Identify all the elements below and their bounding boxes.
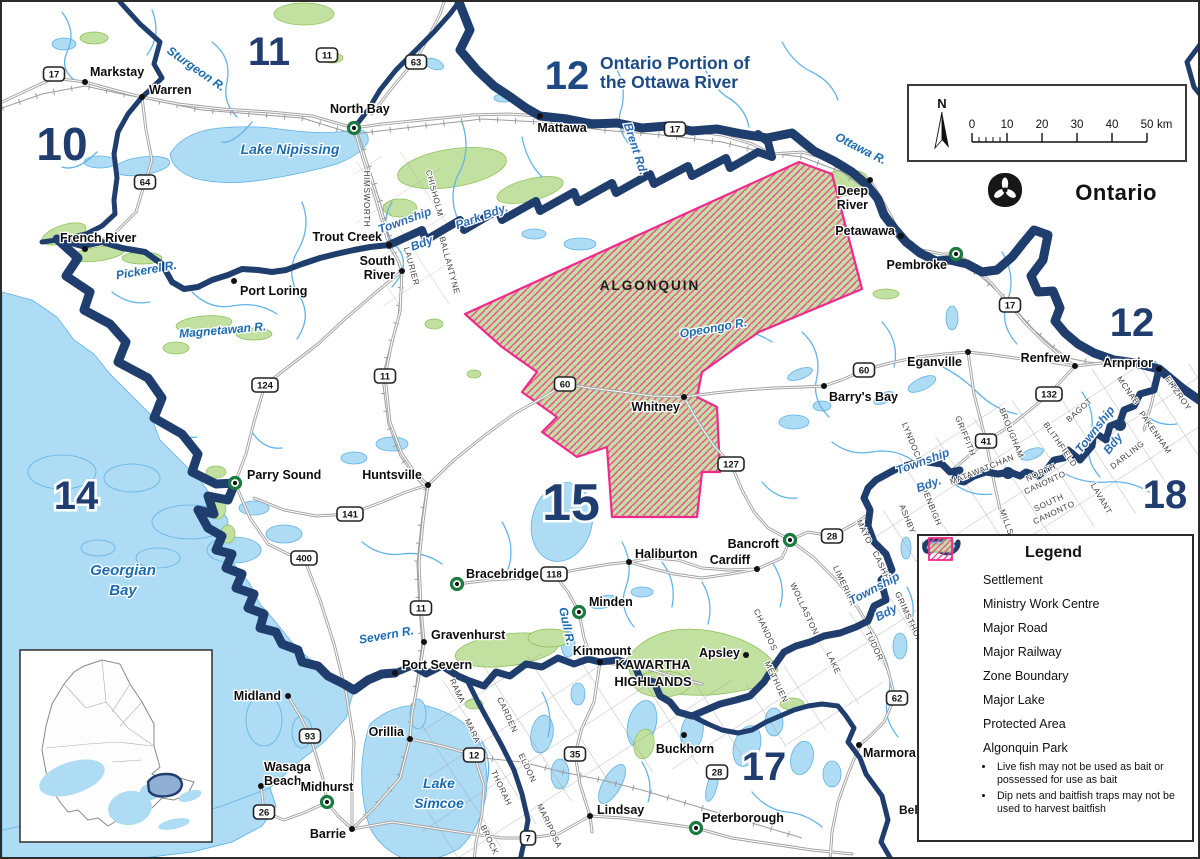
settlement-label: Barrie xyxy=(310,827,346,841)
settlement-dot xyxy=(821,383,827,389)
settlement-label: Cardiff xyxy=(710,553,751,567)
settlement-label: Renfrew xyxy=(1021,351,1071,365)
shield-number: 41 xyxy=(981,437,992,448)
map-page: HIMSWORTHCHISHOLMLAURIERBALLANTYNELYNDOC… xyxy=(0,0,1200,859)
settlement-label: Parry Sound xyxy=(247,468,321,482)
settlement-label: Whitney xyxy=(631,400,680,414)
legend-item-road: Major Road xyxy=(925,616,1182,640)
settlement-dot xyxy=(386,242,392,248)
road-shield-11: 11 xyxy=(317,48,338,62)
settlement-label: Midland xyxy=(234,689,281,703)
shield-number: 132 xyxy=(1041,390,1057,401)
settlement-dot xyxy=(421,639,427,645)
scale-bar: N 01020304050km xyxy=(907,84,1187,162)
road-shield-28: 28 xyxy=(822,529,843,543)
scale-tick-label: 30 xyxy=(1071,119,1084,131)
settlement-label: Midhurst xyxy=(301,780,355,794)
settlement-label: Minden xyxy=(589,595,633,609)
legend-item-label: Zone Boundary xyxy=(983,669,1068,683)
settlement-label: Trout Creek xyxy=(313,230,383,244)
road-shield-11: 11 xyxy=(375,369,396,383)
shield-number: 11 xyxy=(380,372,391,383)
title-line1: Ontario Portion of xyxy=(600,53,750,73)
zone-number-15: 15 xyxy=(542,474,600,532)
settlement-label: Port Loring xyxy=(240,284,307,298)
shield-number: 124 xyxy=(257,381,274,392)
map-title: 12 Ontario Portion of the Ottawa River xyxy=(545,53,750,98)
road-shield-118: 118 xyxy=(541,567,567,581)
zone-number-17: 17 xyxy=(742,745,787,789)
settlement-dot xyxy=(681,394,687,400)
settlement-label: Barry's Bay xyxy=(829,390,898,404)
shield-number: 118 xyxy=(546,570,561,581)
boundary-label: Park Bdy. xyxy=(453,200,509,232)
road-shield-400: 400 xyxy=(291,551,317,565)
shield-number: 28 xyxy=(827,532,838,543)
scale-tick-label: 0 xyxy=(969,119,975,131)
road-shield-17: 17 xyxy=(1000,298,1021,312)
water-label: Lake xyxy=(423,775,455,791)
trillium-icon xyxy=(987,172,1023,208)
road-shield-127: 127 xyxy=(718,457,744,471)
legend-item-rail: Major Railway xyxy=(925,640,1182,664)
legend-item-park: Algonquin Park xyxy=(925,736,1182,760)
ministry-work-centre-dot xyxy=(788,538,792,542)
legend-item-label: Major Lake xyxy=(983,693,1045,707)
scale-tick-label: 20 xyxy=(1036,119,1049,131)
shield-number: 60 xyxy=(560,380,571,391)
water-label: Georgian xyxy=(90,562,156,579)
settlement-dot xyxy=(1156,366,1162,372)
settlement-label: Bracebridge xyxy=(466,567,539,581)
road-shield-64: 64 xyxy=(135,175,156,189)
settlement-label: Marmora xyxy=(863,746,917,760)
road-shield-62: 62 xyxy=(887,691,908,705)
settlement-label: Peterborough xyxy=(702,811,784,825)
settlement-dot xyxy=(399,268,405,274)
road-shield-124: 124 xyxy=(252,378,278,392)
shield-number: 11 xyxy=(416,604,427,615)
settlement-label: Buckhorn xyxy=(656,742,714,756)
shield-number: 63 xyxy=(411,58,422,69)
settlement-label: River xyxy=(364,268,395,282)
water-label: Simcoe xyxy=(414,795,464,811)
settlement-barrie: Barrie xyxy=(310,826,355,841)
shield-number: 35 xyxy=(570,750,581,761)
settlement-markstay: Markstay xyxy=(82,65,144,85)
road-shield-93: 93 xyxy=(300,729,321,743)
park-note: Live fish may not be used as bait or pos… xyxy=(995,761,1182,787)
water-label: Lake Nipissing xyxy=(241,141,340,157)
legend-item-label: Protected Area xyxy=(983,717,1066,731)
settlement-label: Deep xyxy=(837,184,868,198)
legend-item-label: Ministry Work Centre xyxy=(983,597,1099,611)
shield-number: 11 xyxy=(322,51,333,62)
legend: Legend SettlementMinistry Work CentreMaj… xyxy=(917,534,1194,842)
shield-number: 7 xyxy=(525,834,530,845)
legend-item-label: Settlement xyxy=(983,573,1043,587)
settlement-huntsville: Huntsville xyxy=(362,468,431,488)
settlement-dot xyxy=(1072,363,1078,369)
settlement-label: Mattawa xyxy=(537,121,587,135)
township-label: CHANDOS xyxy=(752,608,779,653)
ministry-work-centre-dot xyxy=(694,826,698,830)
settlement-label: Warren xyxy=(149,83,192,97)
settlement-label: Orillia xyxy=(369,725,405,739)
settlement-barry-s-bay: Barry's Bay xyxy=(821,383,898,404)
road-shield-141: 141 xyxy=(337,507,363,521)
settlement-label: Lindsay xyxy=(597,803,644,817)
settlement-label: South xyxy=(360,254,395,268)
legend-item-label: Major Railway xyxy=(983,645,1062,659)
road-shield-41: 41 xyxy=(976,434,997,448)
settlement-dot xyxy=(231,278,237,284)
algonquin-park-area xyxy=(465,162,862,517)
legend-item-label: Major Road xyxy=(983,621,1048,635)
ministry-work-centre-dot xyxy=(455,582,459,586)
zone-number-14: 14 xyxy=(54,474,99,518)
shield-number: 17 xyxy=(49,70,60,81)
shield-number: 60 xyxy=(859,366,870,377)
shield-number: 127 xyxy=(723,460,739,471)
ministry-work-centre-dot xyxy=(577,610,581,614)
legend-item-mwc: Ministry Work Centre xyxy=(925,592,1182,616)
settlement-dot xyxy=(537,113,543,119)
road-shield-60: 60 xyxy=(854,363,875,377)
settlement-label: River xyxy=(837,198,868,212)
settlement-label: Markstay xyxy=(90,65,144,79)
settlement-label: Haliburton xyxy=(635,547,698,561)
settlement-dot xyxy=(743,652,749,658)
settlement-label: French River xyxy=(60,231,137,245)
settlement-dot xyxy=(407,736,413,742)
ontario-logo-text: Ontario xyxy=(1075,180,1157,206)
township-label: HIMSWORTH xyxy=(362,171,371,228)
settlement-label: Eganville xyxy=(907,355,962,369)
settlement-dot xyxy=(898,233,904,239)
settlement-petawawa: Petawawa xyxy=(835,224,904,239)
park-note: Dip nets and baitfish traps may not be u… xyxy=(995,790,1182,816)
settlement-dot xyxy=(139,94,145,100)
settlement-dot xyxy=(856,742,862,748)
scale-tick-label: 50 xyxy=(1141,119,1154,131)
road-shield-17: 17 xyxy=(665,122,686,136)
road-shield-132: 132 xyxy=(1036,387,1062,401)
settlement-dot xyxy=(587,813,593,819)
settlement-dot xyxy=(285,693,291,699)
settlement-bracebridge: Bracebridge xyxy=(452,567,539,590)
ministry-work-centre-dot xyxy=(233,481,237,485)
settlement-label: North Bay xyxy=(330,102,390,116)
settlement-label: Wasaga xyxy=(264,760,312,774)
zone-number-18: 18 xyxy=(1143,473,1188,517)
road-shield-35: 35 xyxy=(565,747,586,761)
settlement-port-loring: Port Loring xyxy=(231,278,307,298)
north-label: N xyxy=(937,96,946,111)
shield-number: 12 xyxy=(469,751,480,762)
shield-number: 62 xyxy=(892,694,903,705)
area-label: HIGHLANDS xyxy=(614,674,692,689)
water-label: Severn R. xyxy=(358,623,415,646)
road-shield-11: 11 xyxy=(411,601,432,615)
settlement-midhurst: Midhurst xyxy=(301,780,355,808)
legend-item-dot: Settlement xyxy=(925,568,1182,592)
scale-tick-label: 40 xyxy=(1106,119,1119,131)
settlement-label: Petawawa xyxy=(835,224,896,238)
legend-item-protected: Protected Area xyxy=(925,712,1182,736)
settlement-dot xyxy=(867,177,873,183)
legend-item-zone: Zone Boundary xyxy=(925,664,1182,688)
legend-title: Legend xyxy=(925,544,1182,562)
title-line2: the Ottawa River xyxy=(600,72,738,92)
settlement-dot xyxy=(349,826,355,832)
algonquin-park-notes: Live fish may not be used as bait or pos… xyxy=(983,761,1182,816)
shield-number: 28 xyxy=(712,768,723,779)
settlement-label: Huntsville xyxy=(362,468,422,482)
settlement-label: Arnprior xyxy=(1103,356,1153,370)
shield-number: 26 xyxy=(259,808,270,819)
township-label: WOLLASTON xyxy=(788,581,820,636)
shield-number: 17 xyxy=(670,125,681,136)
settlement-minden: Minden xyxy=(574,595,633,618)
settlement-dot xyxy=(681,732,687,738)
zone-number-12: 12 xyxy=(1110,301,1155,345)
ministry-work-centre-dot xyxy=(325,800,329,804)
settlement-dot xyxy=(597,659,603,665)
settlement-dot xyxy=(626,559,632,565)
settlement-dot xyxy=(965,349,971,355)
settlement-dot xyxy=(392,670,398,676)
shield-number: 141 xyxy=(342,510,359,521)
ministry-work-centre-dot xyxy=(954,252,958,256)
road-shield-12: 12 xyxy=(464,748,485,762)
settlement-label: Gravenhurst xyxy=(431,628,506,642)
algonquin-park-label: ALGONQUIN xyxy=(600,278,701,293)
settlement-label: Beach xyxy=(264,774,302,788)
settlement-dot xyxy=(82,79,88,85)
settlement-marmora: Marmora xyxy=(856,742,917,760)
settlement-label: Port Severn xyxy=(402,658,472,672)
road-shield-28: 28 xyxy=(707,765,728,779)
inset-map xyxy=(20,650,212,842)
scale-unit: km xyxy=(1157,119,1172,131)
settlement-parry-sound: Parry Sound xyxy=(230,468,322,489)
shield-number: 400 xyxy=(296,554,312,565)
area-label: KAWARTHA xyxy=(615,657,691,672)
ministry-work-centre-dot xyxy=(352,126,356,130)
title-zone-number: 12 xyxy=(545,54,590,98)
shield-number: 17 xyxy=(1005,301,1016,312)
ontario-logo: Ontario xyxy=(987,172,1157,214)
north-arrow-icon xyxy=(942,112,949,148)
shield-number: 93 xyxy=(305,732,316,743)
road-shield-7: 7 xyxy=(521,831,536,845)
road-shield-26: 26 xyxy=(254,805,275,819)
settlement-dot xyxy=(82,246,88,252)
scale-tick-label: 10 xyxy=(1001,119,1014,131)
shield-number: 64 xyxy=(140,178,151,189)
zone-number-11: 11 xyxy=(248,30,290,74)
water-label: Bay xyxy=(109,582,137,599)
legend-item-lake: Major Lake xyxy=(925,688,1182,712)
settlement-label: Pembroke xyxy=(887,258,947,272)
legend-item-label: Algonquin Park xyxy=(983,741,1068,755)
settlement-dot xyxy=(754,566,760,572)
settlement-label: Bancroft xyxy=(728,537,780,551)
road-shield-17: 17 xyxy=(44,67,65,81)
road-shield-60: 60 xyxy=(555,377,576,391)
settlement-dot xyxy=(425,482,431,488)
zone-number-10: 10 xyxy=(36,118,87,170)
settlement-label: Kinmount xyxy=(573,644,632,658)
settlement-label: Apsley xyxy=(699,646,740,660)
road-shield-63: 63 xyxy=(406,55,427,69)
